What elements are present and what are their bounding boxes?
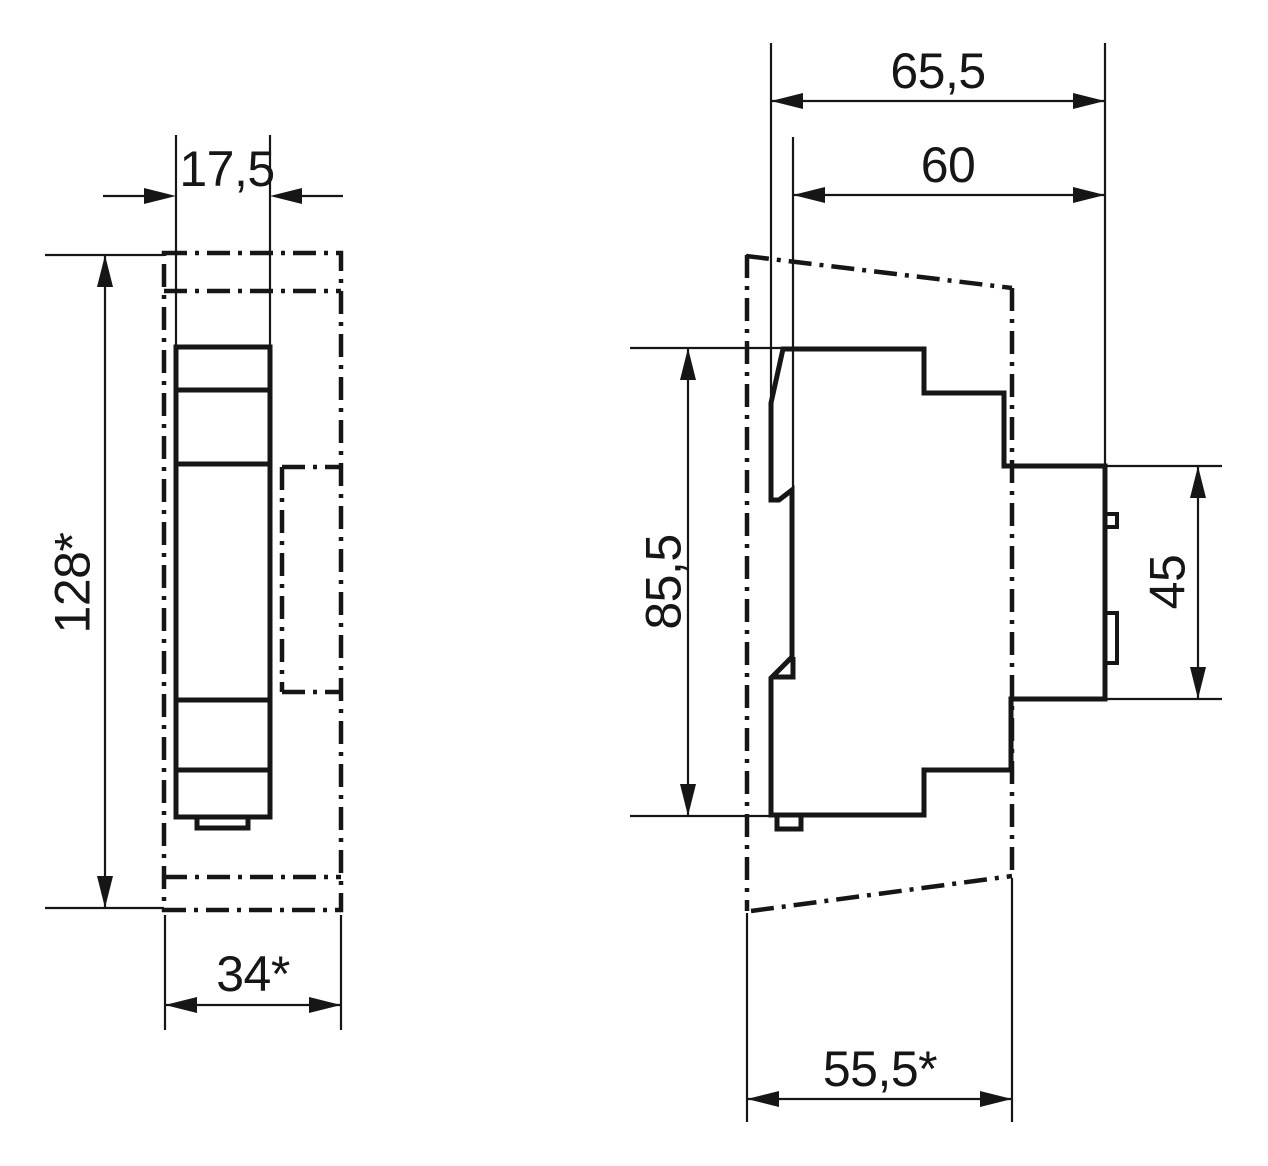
dim-label-flush-mount-depth: 55,5* bbox=[823, 1041, 937, 1097]
technical-drawing-page: 17,5 128* 34* bbox=[0, 0, 1268, 1166]
device-section-lines bbox=[176, 390, 270, 770]
front-device-outline bbox=[176, 347, 270, 828]
dimension-total-depth: 65,5 bbox=[771, 43, 1105, 466]
dimension-front-collar-height: 45 bbox=[1107, 466, 1222, 699]
dimension-flush-mount-depth: 55,5* bbox=[747, 878, 1012, 1122]
dim-label-front-height: 128* bbox=[45, 533, 101, 634]
cover-cutout-side-bracket bbox=[282, 467, 341, 692]
dim-label-body-height: 85,5 bbox=[636, 534, 692, 629]
dim-label-cover-width: 34* bbox=[216, 946, 290, 1002]
dimension-cover-width: 34* bbox=[165, 915, 341, 1030]
device-body-rect bbox=[176, 347, 270, 817]
dimension-depth-from-rail: 60 bbox=[793, 137, 1105, 488]
device-profile bbox=[771, 349, 1105, 815]
dim-label-front-width: 17,5 bbox=[179, 141, 274, 197]
side-device-outline bbox=[771, 349, 1117, 829]
front-face-latch-small bbox=[1105, 514, 1117, 527]
front-cover-phantom-outline bbox=[164, 253, 341, 910]
dim-label-total-depth: 65,5 bbox=[890, 43, 985, 99]
extension-lines bbox=[771, 43, 1105, 466]
front-view: 17,5 128* 34* bbox=[45, 135, 344, 1030]
side-view: 65,5 60 85,5 45 55,5* bbox=[630, 43, 1222, 1122]
dim-label-front-collar-height: 45 bbox=[1140, 555, 1196, 610]
dimension-front-height: 128* bbox=[45, 255, 165, 908]
dimension-body-height: 85,5 bbox=[630, 348, 781, 816]
dimension-front-width: 17,5 bbox=[103, 135, 343, 347]
cover-top-slant-line bbox=[746, 256, 1012, 288]
dim-label-depth-from-rail: 60 bbox=[921, 137, 976, 193]
technical-drawing-canvas: 17,5 128* 34* bbox=[0, 0, 1268, 1166]
front-face-latch-large bbox=[1105, 613, 1117, 663]
cover-outer-rect bbox=[164, 253, 341, 910]
cover-bottom-slant-line bbox=[751, 876, 1012, 911]
